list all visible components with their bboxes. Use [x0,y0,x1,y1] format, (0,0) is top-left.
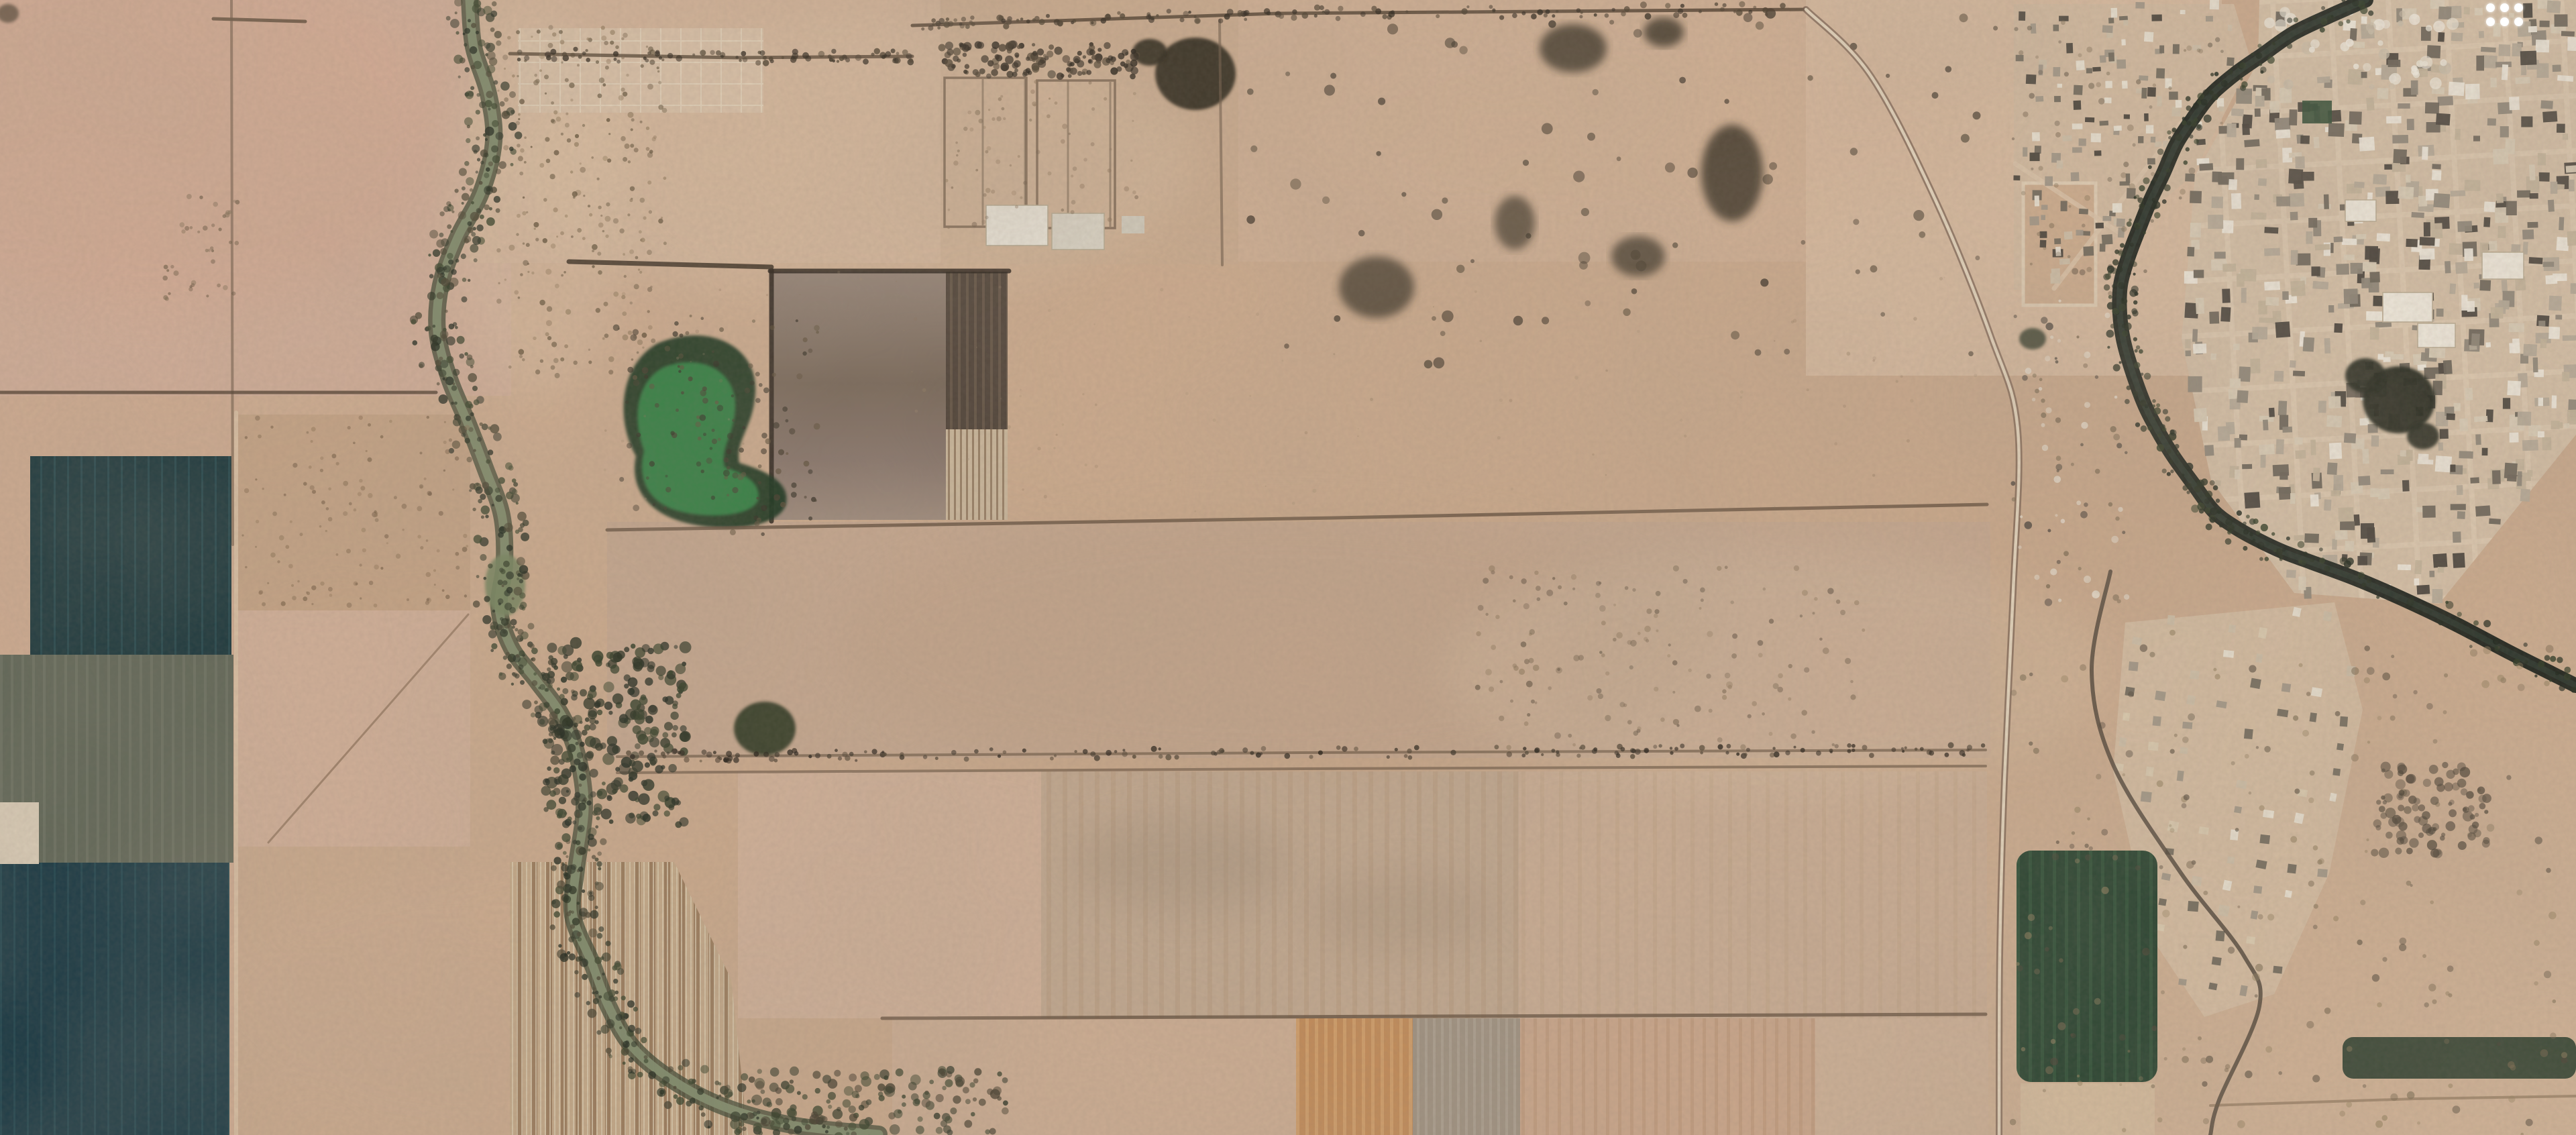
grid-dot [2486,3,2495,12]
grid-dot [2500,3,2509,12]
satellite-canvas [0,0,2576,1135]
grid-dot [2514,17,2523,26]
apps-grid-icon[interactable] [2486,3,2523,26]
satellite-imagery-viewport[interactable] [0,0,2576,1135]
grain-fine [0,0,2576,1135]
grid-dot [2486,17,2495,26]
grid-dot [2514,3,2523,12]
grid-dot [2500,17,2509,26]
terrain-scene [0,0,2576,1135]
